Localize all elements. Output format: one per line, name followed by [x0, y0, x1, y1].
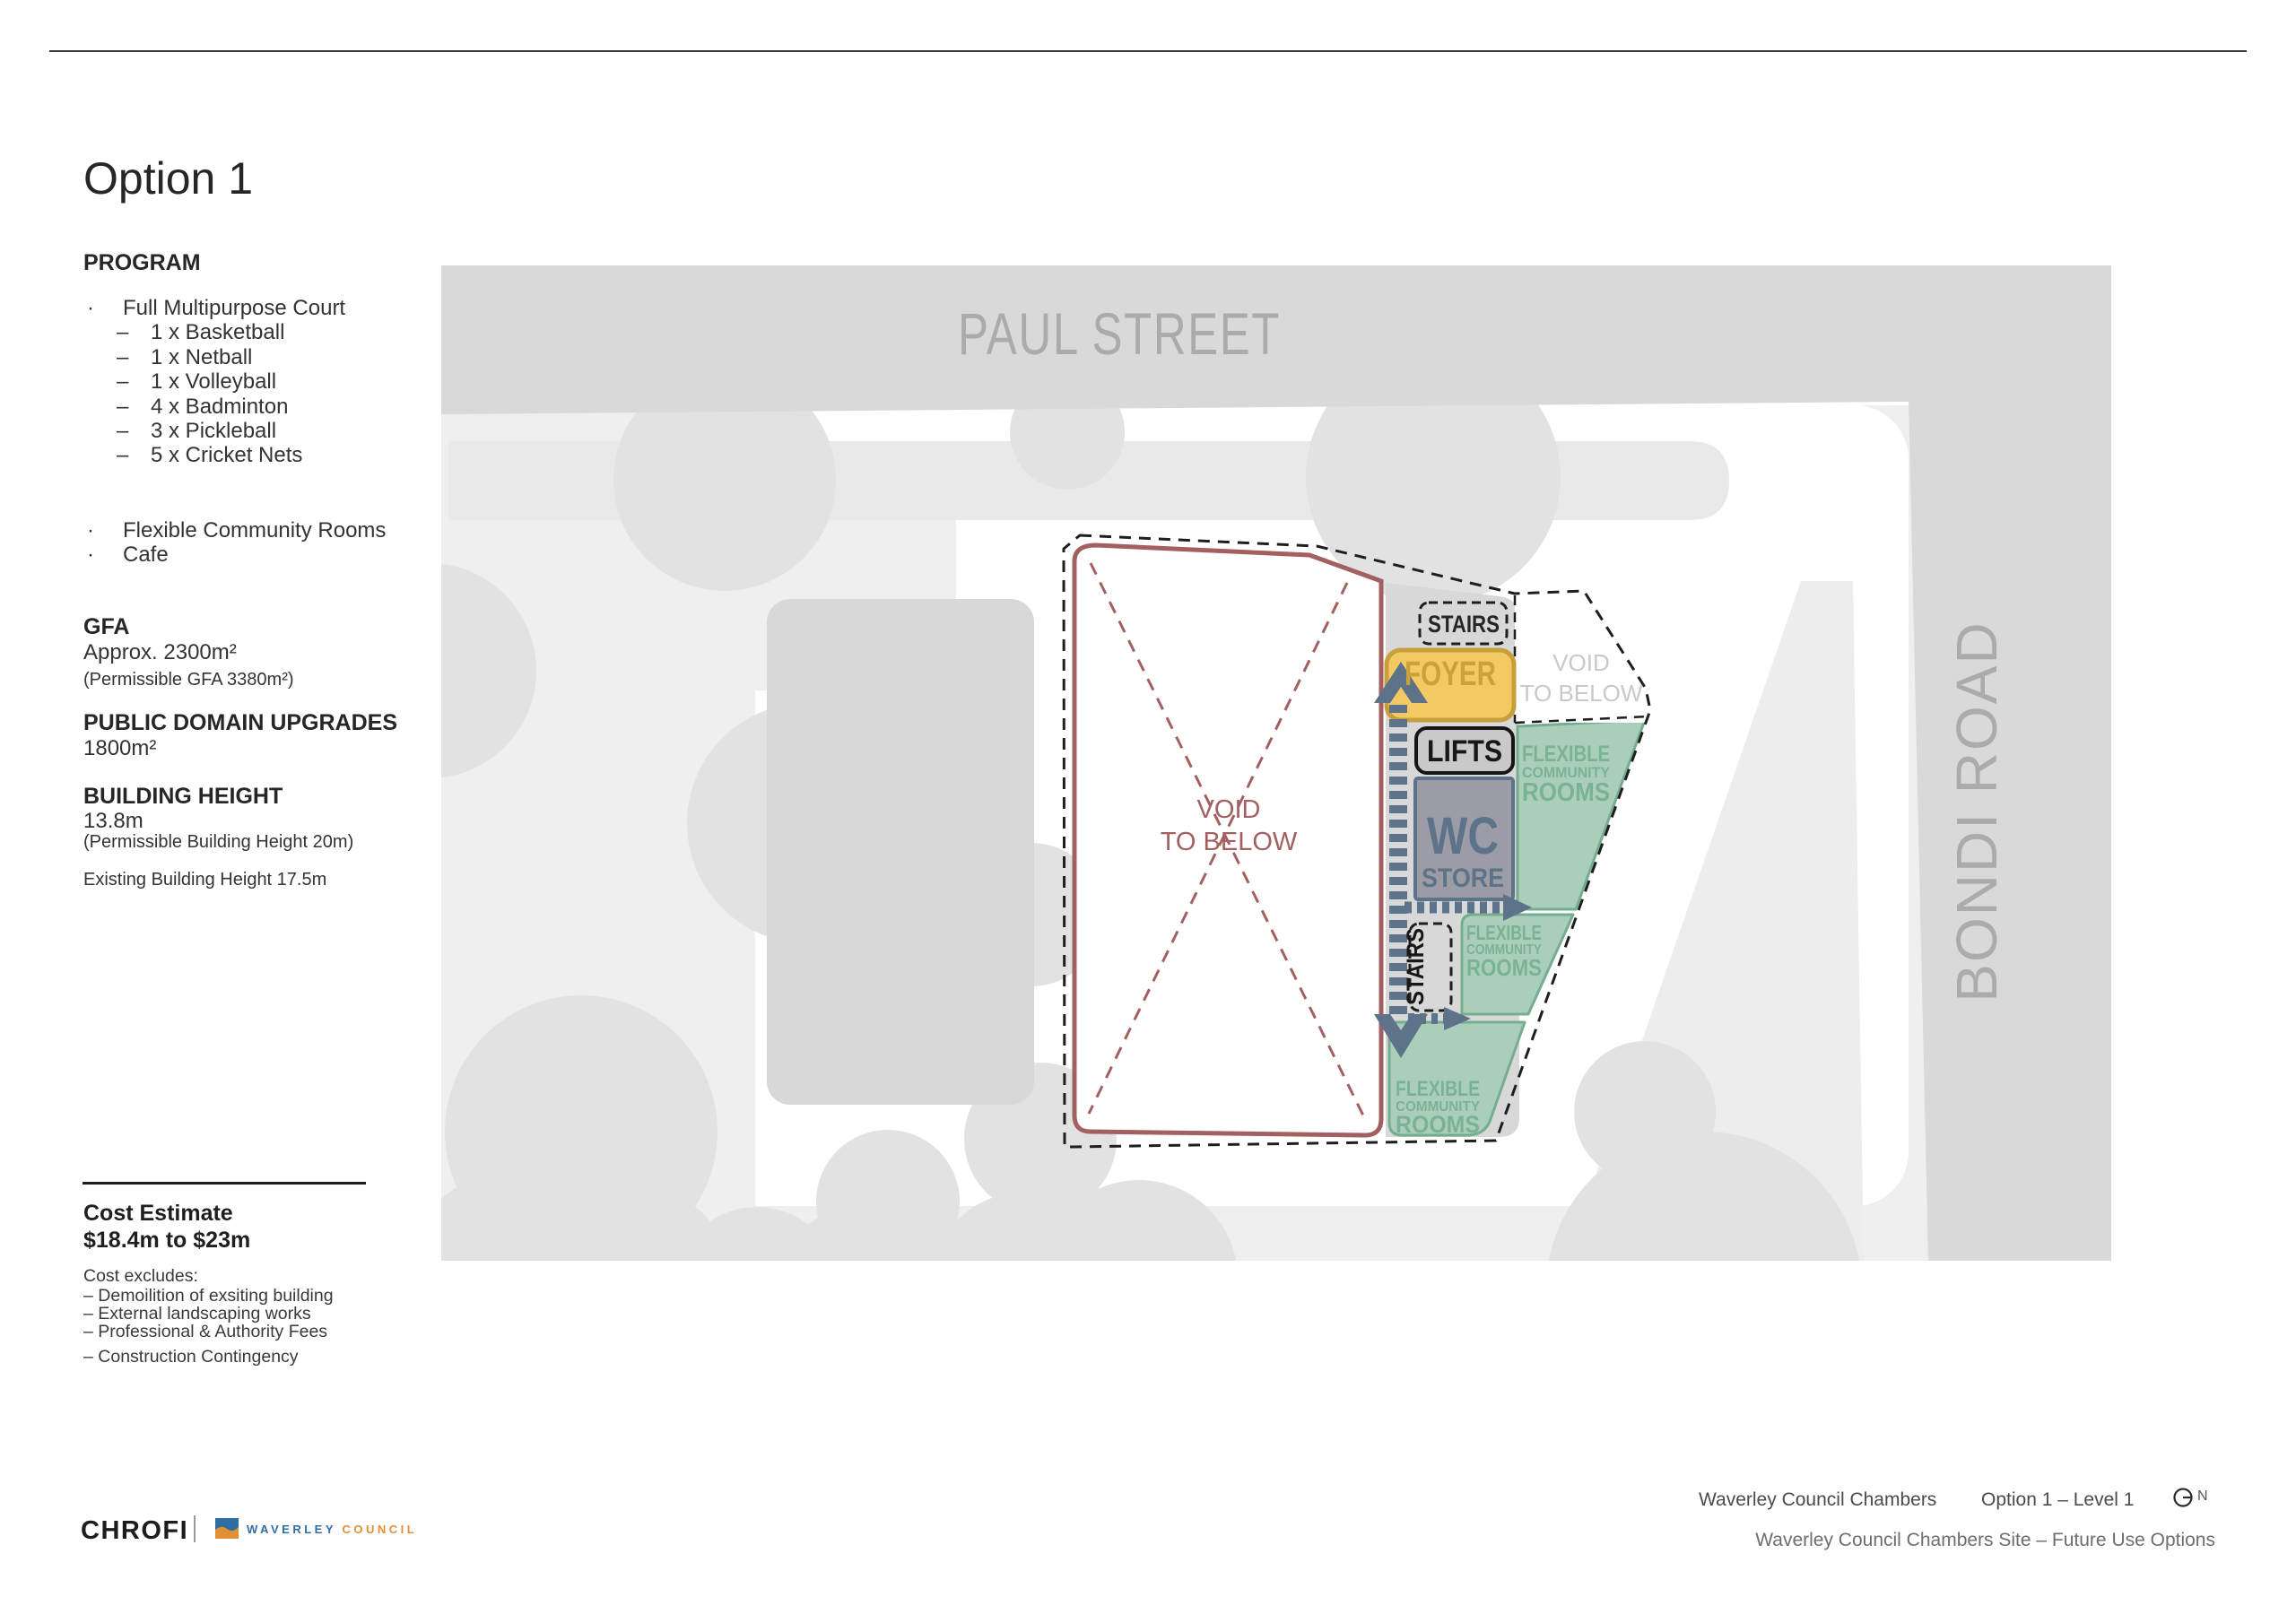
waverley-council-logo-icon	[215, 1518, 239, 1539]
tree-icon	[1040, 1180, 1238, 1377]
bondi-road-band	[1909, 400, 2111, 1261]
flex-label-middle: FLEXIBLE COMMUNITY ROOMS	[1466, 921, 1542, 981]
chrofi-logo: CHROFI	[81, 1516, 188, 1546]
flex-label-line: ROOMS	[1466, 954, 1542, 981]
void-below-line: VOID	[1552, 649, 1610, 676]
waverley-council-logotype: WAVERLEY COUNCIL	[247, 1522, 417, 1538]
flex-label-line: FLEXIBLE	[1466, 921, 1542, 944]
stairs-top-label: STAIRS	[1428, 611, 1500, 638]
tree-icon	[1546, 1132, 1862, 1447]
wc-label: WC	[1427, 807, 1499, 865]
north-arrow-icon	[2172, 1487, 2194, 1508]
tree-icon	[321, 563, 536, 778]
flex-label-line: ROOMS	[1522, 778, 1610, 807]
existing-building-footprint	[767, 599, 1034, 1105]
lifts-label: LIFTS	[1427, 734, 1502, 768]
void-below-line: TO BELOW	[1520, 680, 1643, 707]
site-plan: PAUL STREET BONDI ROAD	[0, 0, 2296, 1623]
footer-project-title: Waverley Council Chambers	[1699, 1489, 1936, 1511]
flex-label-line: FLEXIBLE	[1396, 1077, 1480, 1101]
stairs-side-label: STAIRS	[1402, 928, 1429, 1005]
paul-street-label: PAUL STREET	[958, 300, 1281, 367]
footer-separator	[194, 1515, 196, 1542]
flex-label-bottom: FLEXIBLE COMMUNITY ROOMS	[1396, 1077, 1480, 1138]
council-word-waverley: WAVERLEY	[247, 1523, 336, 1536]
flex-label-top: FLEXIBLE COMMUNITY ROOMS	[1522, 742, 1611, 807]
flex-label-line: ROOMS	[1396, 1111, 1480, 1138]
footer-subtitle: Waverley Council Chambers Site – Future …	[1755, 1530, 2215, 1551]
court-void-line: VOID	[1197, 795, 1261, 824]
tree-icon	[405, 1176, 599, 1370]
north-label: N	[2197, 1488, 2208, 1505]
bondi-road-label: BONDI ROAD	[1944, 621, 2009, 1002]
tree-icon	[776, 1206, 946, 1376]
court-void-line: TO BELOW	[1161, 828, 1298, 856]
footer-sheet-title: Option 1 – Level 1	[1981, 1489, 2134, 1511]
store-label: STORE	[1422, 864, 1504, 893]
tree-icon	[554, 1189, 730, 1365]
foyer-label: FOYER	[1405, 655, 1496, 693]
council-word-council: COUNCIL	[342, 1523, 417, 1536]
flex-label-line: FLEXIBLE	[1522, 742, 1610, 767]
